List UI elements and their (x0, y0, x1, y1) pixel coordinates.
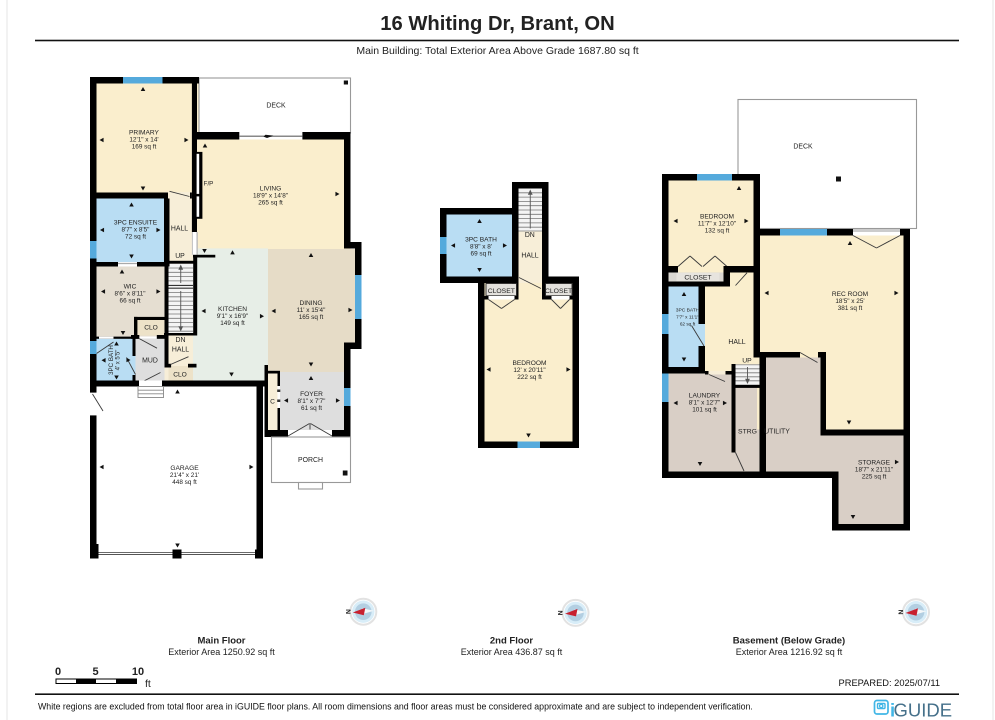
svg-text:WIC: WIC (124, 284, 137, 291)
svg-text:3PC BATH: 3PC BATH (676, 308, 700, 314)
svg-text:FOYER: FOYER (300, 391, 323, 398)
svg-text:3PC BATH: 3PC BATH (108, 345, 115, 375)
svg-text:61 sq ft: 61 sq ft (301, 405, 322, 412)
svg-text:PREPARED: 2025/07/11: PREPARED: 2025/07/11 (839, 678, 940, 688)
svg-text:Exterior Area 1216.92 sq ft: Exterior Area 1216.92 sq ft (736, 647, 843, 657)
svg-text:2nd Floor: 2nd Floor (490, 636, 534, 647)
svg-text:Exterior Area 1250.92 sq ft: Exterior Area 1250.92 sq ft (168, 647, 275, 657)
svg-text:PORCH: PORCH (298, 457, 323, 464)
svg-text:White regions are excluded fro: White regions are excluded from total fl… (38, 702, 753, 712)
svg-text:GARAGE: GARAGE (170, 465, 199, 472)
svg-text:Basement (Below Grade): Basement (Below Grade) (733, 636, 845, 647)
svg-text:CLOSET: CLOSET (684, 274, 711, 281)
svg-text:LIVING: LIVING (260, 186, 282, 193)
svg-text:3PC BATH: 3PC BATH (465, 236, 497, 243)
svg-text:HALL: HALL (172, 347, 189, 354)
svg-text:10: 10 (132, 666, 144, 678)
svg-text:Main Floor: Main Floor (197, 636, 245, 647)
svg-text:8'1" x 12'7": 8'1" x 12'7" (689, 400, 721, 407)
svg-text:MUD: MUD (142, 358, 158, 365)
svg-text:KITCHEN: KITCHEN (218, 306, 247, 313)
svg-text:4' x 5'5": 4' x 5'5" (116, 350, 122, 371)
svg-text:DN: DN (176, 337, 186, 344)
svg-text:169 sq ft: 169 sq ft (132, 143, 157, 150)
svg-text:8'7" x 8'5": 8'7" x 8'5" (122, 227, 150, 234)
svg-text:16 Whiting Dr, Brant, ON: 16 Whiting Dr, Brant, ON (380, 13, 614, 35)
svg-text:REC ROOM: REC ROOM (832, 291, 868, 298)
svg-text:HALL: HALL (521, 252, 538, 259)
svg-text:BEDROOM: BEDROOM (512, 360, 546, 367)
svg-text:STRG: STRG (738, 429, 757, 436)
svg-text:62 sq ft: 62 sq ft (680, 322, 696, 327)
svg-text:DINING: DINING (299, 300, 322, 307)
svg-text:C: C (270, 399, 275, 406)
svg-text:STORAGE: STORAGE (858, 460, 891, 467)
svg-text:PRIMARY: PRIMARY (129, 129, 160, 136)
svg-text:8'8" x 8': 8'8" x 8' (470, 243, 492, 250)
svg-text:8'6" x 8'11": 8'6" x 8'11" (114, 291, 145, 298)
svg-text:12' x 20'11": 12' x 20'11" (513, 367, 545, 374)
svg-text:225 sq ft: 225 sq ft (862, 474, 887, 481)
svg-text:8'1" x 7'7": 8'1" x 7'7" (298, 398, 326, 405)
svg-text:448 sq ft: 448 sq ft (172, 479, 197, 486)
svg-text:132 sq ft: 132 sq ft (705, 228, 730, 235)
svg-text:DN: DN (525, 232, 535, 239)
svg-text:165 sq ft: 165 sq ft (299, 314, 324, 321)
svg-text:381 sq ft: 381 sq ft (838, 305, 863, 312)
svg-text:N: N (558, 610, 565, 615)
svg-text:12'1" x 14': 12'1" x 14' (129, 136, 158, 143)
svg-text:9'1" x 16'9": 9'1" x 16'9" (217, 313, 249, 320)
svg-text:CLOSET: CLOSET (545, 288, 572, 295)
svg-text:UP: UP (742, 358, 752, 365)
svg-text:66 sq ft: 66 sq ft (120, 298, 141, 305)
svg-text:CLO: CLO (144, 325, 158, 332)
svg-text:DECK: DECK (266, 103, 286, 110)
svg-text:72 sq ft: 72 sq ft (125, 234, 146, 241)
svg-text:HALL: HALL (171, 226, 188, 233)
svg-text:21'4" x 21': 21'4" x 21' (170, 472, 199, 479)
svg-text:CLOSET: CLOSET (488, 288, 515, 295)
svg-text:18'7" x 21'11": 18'7" x 21'11" (855, 467, 893, 474)
svg-text:5: 5 (92, 666, 98, 678)
svg-text:7'7" x 11'1": 7'7" x 11'1" (676, 315, 699, 320)
svg-text:265 sq ft: 265 sq ft (258, 200, 283, 207)
svg-text:3PC ENSUITE: 3PC ENSUITE (114, 220, 158, 227)
svg-text:N: N (898, 610, 905, 615)
svg-text:CLO: CLO (173, 372, 187, 379)
svg-text:ft: ft (145, 678, 151, 690)
svg-text:LAUNDRY: LAUNDRY (689, 393, 721, 400)
svg-text:BEDROOM: BEDROOM (700, 214, 734, 221)
svg-text:101 sq ft: 101 sq ft (692, 407, 717, 414)
svg-text:69 sq ft: 69 sq ft (471, 250, 492, 257)
svg-text:N: N (346, 609, 353, 614)
svg-text:149 sq ft: 149 sq ft (220, 320, 245, 327)
svg-text:F/P: F/P (204, 181, 214, 188)
svg-text:Exterior Area 436.87 sq ft: Exterior Area 436.87 sq ft (461, 647, 563, 657)
svg-text:HALL: HALL (728, 339, 745, 346)
svg-text:DECK: DECK (793, 144, 813, 151)
svg-text:11' x 15'4": 11' x 15'4" (297, 307, 326, 314)
svg-text:0: 0 (55, 666, 61, 678)
svg-text:222 sq ft: 222 sq ft (517, 374, 542, 381)
svg-text:18'5" x 25': 18'5" x 25' (835, 298, 864, 305)
svg-text:11'7" x 12'10": 11'7" x 12'10" (698, 221, 736, 228)
svg-text:UTILITY: UTILITY (764, 429, 790, 436)
svg-text:GUIDE: GUIDE (894, 700, 953, 720)
svg-text:UP: UP (175, 253, 185, 260)
svg-text:Main Building: Total Exterior: Main Building: Total Exterior Area Above… (356, 45, 638, 57)
svg-text:18'9" x 14'8": 18'9" x 14'8" (253, 193, 288, 200)
